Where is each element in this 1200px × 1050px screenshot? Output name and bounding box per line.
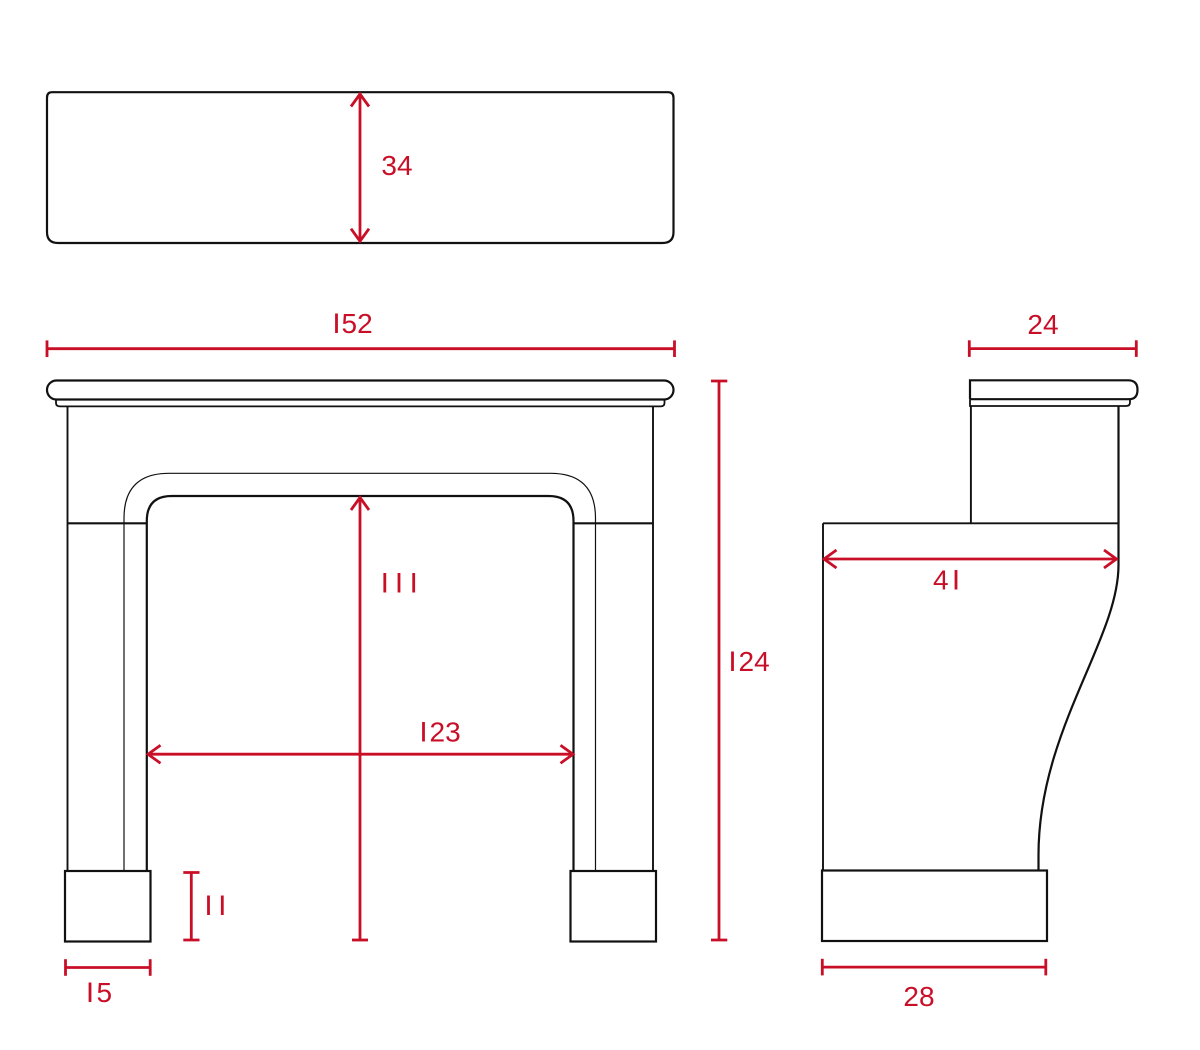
svg-text:28: 28 bbox=[903, 981, 934, 1012]
svg-text:52: 52 bbox=[342, 308, 373, 339]
svg-text:24: 24 bbox=[739, 646, 770, 677]
svg-text:4: 4 bbox=[933, 565, 949, 596]
svg-text:34: 34 bbox=[381, 150, 412, 181]
svg-text:23: 23 bbox=[430, 717, 461, 748]
svg-text:5: 5 bbox=[97, 977, 113, 1008]
svg-text:24: 24 bbox=[1027, 309, 1058, 340]
